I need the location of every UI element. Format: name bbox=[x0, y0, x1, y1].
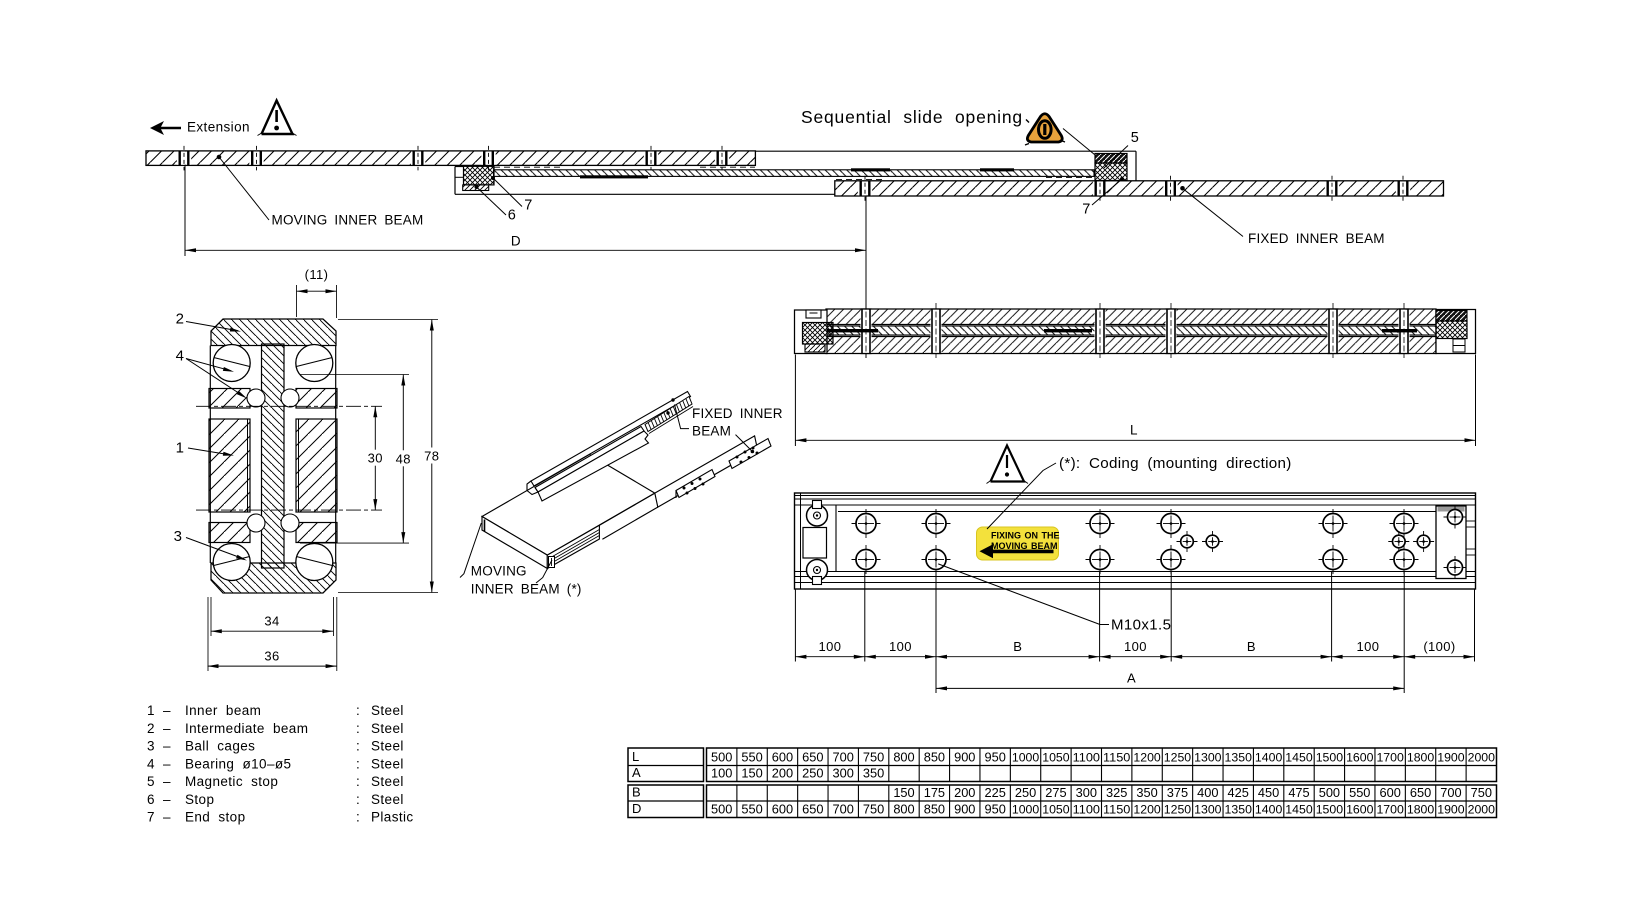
svg-text:(100): (100) bbox=[1423, 639, 1455, 654]
svg-text:M10x1.5: M10x1.5 bbox=[1111, 617, 1171, 634]
svg-text:300: 300 bbox=[833, 765, 854, 780]
svg-text:200: 200 bbox=[772, 765, 793, 780]
svg-text:Steel: Steel bbox=[371, 739, 404, 754]
svg-text:1100: 1100 bbox=[1073, 802, 1101, 816]
svg-text:78: 78 bbox=[424, 449, 439, 464]
svg-text:900: 900 bbox=[954, 749, 975, 764]
svg-text:–: – bbox=[163, 739, 171, 754]
svg-text:1050: 1050 bbox=[1042, 802, 1070, 816]
svg-text:INNER BEAM (*): INNER BEAM (*) bbox=[471, 582, 582, 597]
svg-text:End stop: End stop bbox=[185, 810, 246, 825]
svg-text:–: – bbox=[163, 721, 171, 736]
svg-text:750: 750 bbox=[1471, 785, 1492, 800]
svg-text:1250: 1250 bbox=[1164, 802, 1192, 816]
svg-text:Magnetic stop: Magnetic stop bbox=[185, 774, 278, 789]
svg-text:200: 200 bbox=[954, 785, 975, 800]
svg-text:600: 600 bbox=[772, 749, 793, 764]
svg-text:D: D bbox=[632, 801, 642, 816]
svg-text:750: 750 bbox=[863, 801, 884, 816]
svg-text::: : bbox=[356, 721, 360, 736]
svg-text:FIXED INNER BEAM: FIXED INNER BEAM bbox=[1248, 231, 1385, 246]
svg-text::: : bbox=[356, 703, 360, 718]
svg-text:1300: 1300 bbox=[1194, 750, 1222, 764]
svg-text:L: L bbox=[1130, 423, 1138, 438]
svg-text:950: 950 bbox=[984, 749, 1005, 764]
svg-text:100: 100 bbox=[711, 765, 732, 780]
svg-text:6: 6 bbox=[508, 208, 516, 224]
svg-text::: : bbox=[356, 756, 360, 771]
svg-text:1000: 1000 bbox=[1012, 750, 1040, 764]
svg-text:550: 550 bbox=[1349, 785, 1370, 800]
svg-text:48: 48 bbox=[396, 451, 411, 466]
svg-text:Inner beam: Inner beam bbox=[185, 703, 261, 718]
svg-text:2000: 2000 bbox=[1468, 802, 1496, 816]
svg-text:800: 800 bbox=[893, 749, 914, 764]
svg-text:100: 100 bbox=[819, 639, 842, 654]
svg-text:500: 500 bbox=[1319, 785, 1340, 800]
svg-text:550: 550 bbox=[741, 749, 762, 764]
svg-text:1250: 1250 bbox=[1164, 750, 1192, 764]
svg-text:Ball cages: Ball cages bbox=[185, 739, 255, 754]
svg-text:Steel: Steel bbox=[371, 721, 404, 736]
svg-text:1450: 1450 bbox=[1285, 750, 1313, 764]
svg-text:150: 150 bbox=[893, 785, 914, 800]
svg-text:Steel: Steel bbox=[371, 792, 404, 807]
svg-text:36: 36 bbox=[264, 648, 279, 663]
svg-text:1800: 1800 bbox=[1407, 750, 1435, 764]
svg-text:1450: 1450 bbox=[1285, 802, 1313, 816]
svg-text:5: 5 bbox=[147, 774, 155, 789]
svg-text:350: 350 bbox=[1136, 785, 1157, 800]
svg-text:100: 100 bbox=[1356, 639, 1379, 654]
svg-text:Steel: Steel bbox=[371, 756, 404, 771]
svg-text:250: 250 bbox=[1015, 785, 1036, 800]
svg-text:1200: 1200 bbox=[1133, 750, 1161, 764]
svg-text:1400: 1400 bbox=[1255, 750, 1283, 764]
svg-text:650: 650 bbox=[802, 749, 823, 764]
svg-text:850: 850 bbox=[924, 801, 945, 816]
svg-text:1500: 1500 bbox=[1316, 802, 1344, 816]
svg-text:150: 150 bbox=[741, 765, 762, 780]
svg-text:1800: 1800 bbox=[1407, 802, 1435, 816]
svg-text:1900: 1900 bbox=[1437, 750, 1465, 764]
svg-text:(11): (11) bbox=[305, 267, 329, 282]
svg-text:–: – bbox=[163, 774, 171, 789]
svg-text:3: 3 bbox=[174, 528, 183, 545]
svg-text:225: 225 bbox=[984, 785, 1005, 800]
svg-text:FIXING ON THE: FIXING ON THE bbox=[991, 531, 1060, 541]
svg-text:1: 1 bbox=[176, 440, 185, 457]
svg-text:Steel: Steel bbox=[371, 774, 404, 789]
svg-text:375: 375 bbox=[1167, 785, 1188, 800]
svg-text:7: 7 bbox=[524, 198, 532, 214]
svg-text:5: 5 bbox=[1131, 130, 1139, 146]
svg-text:250: 250 bbox=[802, 765, 823, 780]
svg-text:7: 7 bbox=[1082, 202, 1090, 218]
svg-text:MOVING INNER BEAM: MOVING INNER BEAM bbox=[272, 213, 424, 228]
svg-text:2: 2 bbox=[147, 721, 155, 736]
svg-text:D: D bbox=[511, 234, 521, 249]
svg-text:900: 900 bbox=[954, 801, 975, 816]
svg-text:7: 7 bbox=[147, 810, 155, 825]
svg-text:A: A bbox=[632, 765, 641, 780]
svg-text:475: 475 bbox=[1288, 785, 1309, 800]
svg-text:1000: 1000 bbox=[1012, 802, 1040, 816]
svg-text:1600: 1600 bbox=[1346, 802, 1374, 816]
svg-text:2000: 2000 bbox=[1468, 750, 1496, 764]
svg-text:550: 550 bbox=[741, 801, 762, 816]
svg-text:1600: 1600 bbox=[1346, 750, 1374, 764]
svg-text:30: 30 bbox=[368, 451, 383, 466]
svg-text:FIXED INNER: FIXED INNER bbox=[692, 406, 783, 421]
svg-text:950: 950 bbox=[984, 801, 1005, 816]
svg-text:1100: 1100 bbox=[1073, 750, 1101, 764]
svg-text:700: 700 bbox=[833, 749, 854, 764]
svg-text:4: 4 bbox=[176, 348, 185, 365]
svg-text:700: 700 bbox=[833, 801, 854, 816]
svg-text:BEAM: BEAM bbox=[692, 424, 731, 439]
svg-text:300: 300 bbox=[1076, 785, 1097, 800]
svg-text:1150: 1150 bbox=[1103, 750, 1131, 764]
svg-text:600: 600 bbox=[1379, 785, 1400, 800]
svg-text:500: 500 bbox=[711, 749, 732, 764]
svg-text:1300: 1300 bbox=[1194, 802, 1222, 816]
svg-text:1: 1 bbox=[147, 703, 155, 718]
svg-text:650: 650 bbox=[1410, 785, 1431, 800]
svg-text:1900: 1900 bbox=[1437, 802, 1465, 816]
svg-text:Bearing ø10–ø5: Bearing ø10–ø5 bbox=[185, 756, 291, 771]
svg-text:1150: 1150 bbox=[1103, 802, 1131, 816]
svg-text:800: 800 bbox=[893, 801, 914, 816]
svg-text:6: 6 bbox=[147, 792, 155, 807]
svg-text:(*): Coding (mounting direct: (*): Coding (mounting direction) bbox=[1059, 455, 1292, 472]
svg-text:425: 425 bbox=[1228, 785, 1249, 800]
svg-text:–: – bbox=[163, 703, 171, 718]
svg-text:850: 850 bbox=[924, 749, 945, 764]
svg-text::: : bbox=[356, 739, 360, 754]
svg-text:Intermediate beam: Intermediate beam bbox=[185, 721, 308, 736]
svg-text:650: 650 bbox=[802, 801, 823, 816]
svg-text:Plastic: Plastic bbox=[371, 810, 414, 825]
svg-text:B: B bbox=[632, 785, 641, 800]
svg-text:34: 34 bbox=[264, 614, 279, 629]
svg-text:–: – bbox=[163, 810, 171, 825]
svg-text:1050: 1050 bbox=[1042, 750, 1070, 764]
svg-text:600: 600 bbox=[772, 801, 793, 816]
svg-text::: : bbox=[356, 792, 360, 807]
svg-text:Sequential slide opening: Sequential slide opening bbox=[801, 107, 1023, 127]
svg-text:350: 350 bbox=[863, 765, 884, 780]
svg-text:1400: 1400 bbox=[1255, 802, 1283, 816]
svg-text:400: 400 bbox=[1197, 785, 1218, 800]
svg-text:1200: 1200 bbox=[1133, 802, 1161, 816]
svg-text:MOVING BEAM: MOVING BEAM bbox=[991, 541, 1058, 551]
svg-text:750: 750 bbox=[863, 749, 884, 764]
svg-text:Stop: Stop bbox=[185, 792, 214, 807]
svg-text:B: B bbox=[1247, 639, 1256, 654]
svg-text:–: – bbox=[163, 756, 171, 771]
svg-text:MOVING: MOVING bbox=[471, 564, 527, 579]
svg-text:1350: 1350 bbox=[1225, 802, 1253, 816]
svg-text:2: 2 bbox=[176, 311, 185, 328]
svg-text:A: A bbox=[1127, 671, 1136, 686]
svg-text:1700: 1700 bbox=[1376, 750, 1404, 764]
svg-text::: : bbox=[356, 774, 360, 789]
svg-text:4: 4 bbox=[147, 756, 155, 771]
svg-text:100: 100 bbox=[1124, 639, 1147, 654]
svg-text:1350: 1350 bbox=[1225, 750, 1253, 764]
svg-text:L: L bbox=[632, 749, 640, 764]
svg-text:Steel: Steel bbox=[371, 703, 404, 718]
svg-text:175: 175 bbox=[924, 785, 945, 800]
svg-text::: : bbox=[356, 810, 360, 825]
svg-text:325: 325 bbox=[1106, 785, 1127, 800]
svg-text:B: B bbox=[1013, 639, 1022, 654]
svg-text:275: 275 bbox=[1045, 785, 1066, 800]
svg-text:500: 500 bbox=[711, 801, 732, 816]
svg-text:3: 3 bbox=[147, 739, 155, 754]
svg-text:Extension: Extension bbox=[187, 120, 250, 135]
svg-text:450: 450 bbox=[1258, 785, 1279, 800]
svg-text:100: 100 bbox=[889, 639, 912, 654]
svg-text:1700: 1700 bbox=[1376, 802, 1404, 816]
svg-text:700: 700 bbox=[1440, 785, 1461, 800]
svg-text:–: – bbox=[163, 792, 171, 807]
svg-text:1500: 1500 bbox=[1316, 750, 1344, 764]
